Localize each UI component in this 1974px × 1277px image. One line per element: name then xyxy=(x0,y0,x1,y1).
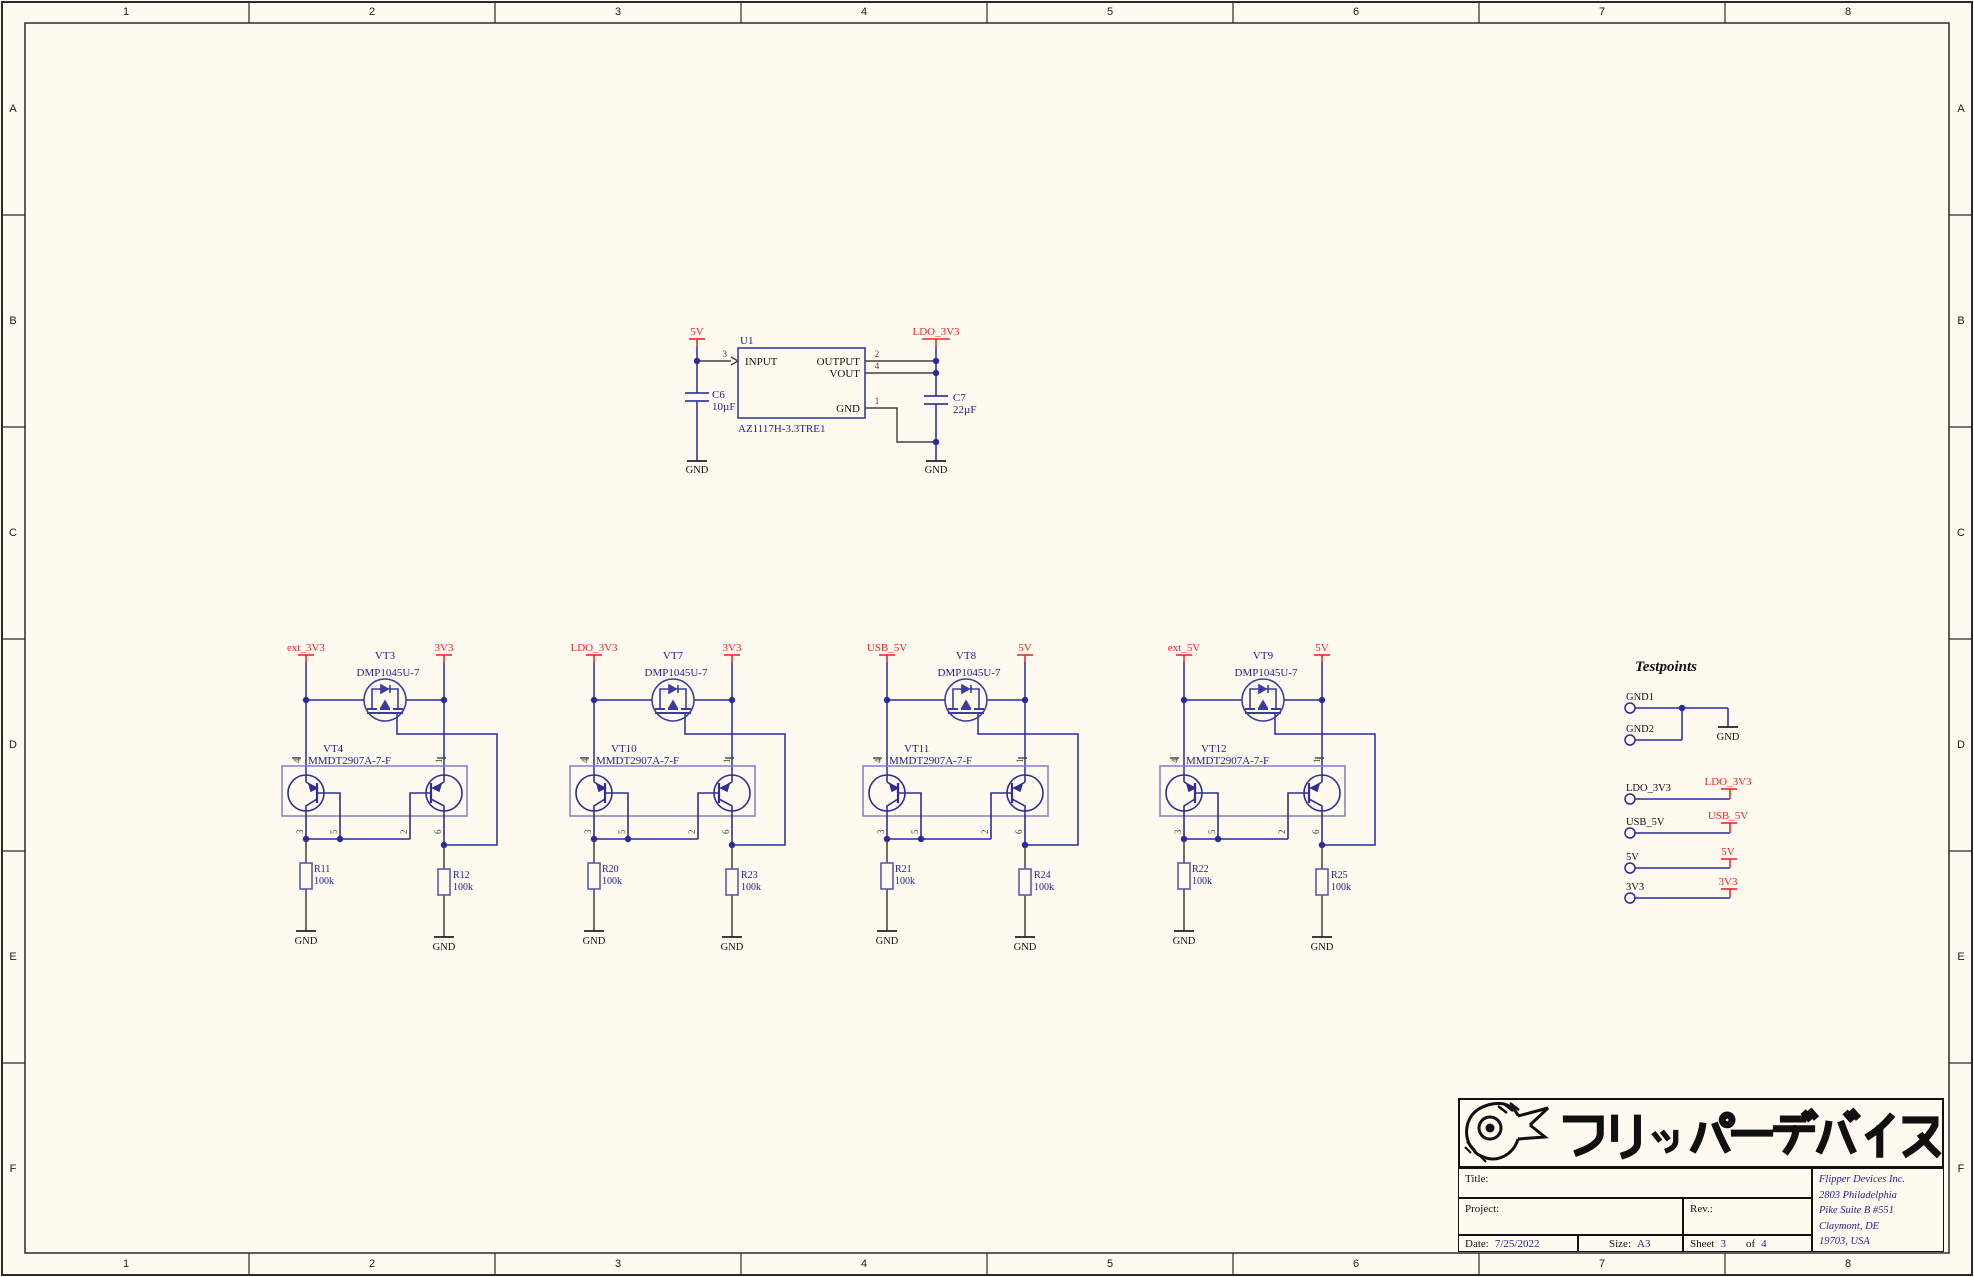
row-ref-left: E xyxy=(9,951,16,963)
bjt-part: MMDT2907A-7-F xyxy=(308,755,391,767)
bjt-refdes: VT10 xyxy=(611,743,637,755)
resistor-value: 100k xyxy=(602,876,622,887)
row-ref-right: C xyxy=(1957,527,1965,539)
col-ref-top: 8 xyxy=(1845,6,1851,18)
row-ref-left: F xyxy=(10,1163,17,1175)
row-ref-right: B xyxy=(1957,315,1964,327)
pin-number: 2 xyxy=(980,830,990,835)
pin-number: 2 xyxy=(687,830,697,835)
pin-name-gnd: GND xyxy=(836,403,860,415)
pin-number: 4 xyxy=(873,758,883,763)
col-ref-top: 3 xyxy=(615,6,621,18)
rev-label: Rev.: xyxy=(1690,1203,1713,1215)
schematic-sheet: { "colors": { "background": "#FFFAF0", "… xyxy=(0,0,1974,1277)
pin-number: 4 xyxy=(580,758,590,763)
row-ref-right: F xyxy=(1958,1163,1965,1175)
col-ref-top: 2 xyxy=(369,6,375,18)
col-ref-top: 5 xyxy=(1107,6,1113,18)
pin-number: 1 xyxy=(434,759,444,764)
gnd-label: GND xyxy=(925,465,948,476)
title-field: Title: xyxy=(1458,1168,1812,1198)
mosfet-refdes: VT3 xyxy=(375,650,396,662)
resistor-refdes: R11 xyxy=(314,864,330,875)
sheet-number: 3 xyxy=(1720,1238,1726,1251)
net-label-left: ext_3V3 xyxy=(287,642,325,654)
pin-number: 1 xyxy=(875,396,880,406)
size-field: Size: A3 xyxy=(1578,1235,1683,1252)
power-switch-circuit-2: LDO_3V3 3V3 VT7 DMP1045U-7 VT10 MMDT2907… xyxy=(558,635,858,965)
net-label-right: 3V3 xyxy=(435,642,454,654)
mosfet-refdes: VT7 xyxy=(663,650,684,662)
testpoint-net-label: USB_5V xyxy=(1708,810,1748,822)
gnd-label: GND xyxy=(1717,732,1740,743)
resistor-refdes: R24 xyxy=(1034,870,1051,881)
row-ref-right: A xyxy=(1957,103,1964,115)
testpoint-name: GND1 xyxy=(1626,692,1654,703)
col-ref-top: 1 xyxy=(123,6,129,18)
bjt-refdes: VT4 xyxy=(323,743,344,755)
testpoint-pad xyxy=(1625,863,1635,873)
testpoint-pad xyxy=(1625,893,1635,903)
pin-number: 1 xyxy=(1312,759,1322,764)
company-line: Pike Suite B #551 xyxy=(1819,1203,1943,1219)
pin-name-output: OUTPUT xyxy=(817,356,861,368)
resistor-value: 100k xyxy=(1034,882,1054,893)
resistor-refdes: R21 xyxy=(895,864,912,875)
rev-field: Rev.: xyxy=(1683,1198,1812,1235)
mosfet-part: DMP1045U-7 xyxy=(1235,667,1298,679)
title-label: Title: xyxy=(1465,1173,1488,1185)
mosfet-part: DMP1045U-7 xyxy=(357,667,420,679)
resistor-refdes: R20 xyxy=(602,864,619,875)
bjt-part: MMDT2907A-7-F xyxy=(1186,755,1269,767)
row-ref-left: D xyxy=(9,739,17,751)
testpoint-pad-gnd2 xyxy=(1625,735,1635,745)
date-field: Date: 7/25/2022 xyxy=(1458,1235,1578,1252)
bjt-part: MMDT2907A-7-F xyxy=(596,755,679,767)
row-ref-right: D xyxy=(1957,739,1965,751)
net-label-right: 5V xyxy=(1018,642,1032,654)
resistor-value: 100k xyxy=(895,876,915,887)
pin-number: 6 xyxy=(721,829,731,834)
of-label: of xyxy=(1746,1238,1755,1251)
pin-number: 5 xyxy=(617,829,627,834)
pin-number: 3 xyxy=(723,349,728,359)
testpoint-pad xyxy=(1625,794,1635,804)
mosfet-refdes: VT8 xyxy=(956,650,977,662)
capacitor-c7 xyxy=(924,396,948,404)
pin-number: 6 xyxy=(433,829,443,834)
testpoints-section: Testpoints GND1 GND2 GND LDO_3V3 USB_5V … xyxy=(1600,650,1810,930)
company-line: Claymont, DE xyxy=(1819,1219,1943,1235)
resistor-value: 100k xyxy=(1192,876,1212,887)
testpoint-net-label: 5V xyxy=(1721,846,1735,858)
pin-number: 1 xyxy=(1015,759,1025,764)
net-label-left: USB_5V xyxy=(867,642,907,654)
resistor-refdes: R23 xyxy=(741,870,758,881)
gnd-label: GND xyxy=(295,936,318,947)
mosfet-part: DMP1045U-7 xyxy=(938,667,1001,679)
regulator-part: AZ1117H-3.3TRE1 xyxy=(738,423,825,435)
dolphin-icon xyxy=(1465,1103,1548,1162)
gnd-label: GND xyxy=(433,942,456,953)
company-line: 2803 Philadelphia xyxy=(1819,1188,1943,1204)
title-block: フリッパーデバイス xyxy=(1458,1098,1944,1252)
net-label-left: LDO_3V3 xyxy=(570,642,618,654)
bjt-part: MMDT2907A-7-F xyxy=(889,755,972,767)
col-ref-bottom: 6 xyxy=(1353,1258,1359,1270)
resistor-value: 100k xyxy=(1331,882,1351,893)
col-ref-bottom: 8 xyxy=(1845,1258,1851,1270)
project-field: Project: xyxy=(1458,1198,1683,1235)
testpoint-name: LDO_3V3 xyxy=(1626,783,1671,794)
pin-number: 3 xyxy=(1173,829,1183,834)
mosfet-part: DMP1045U-7 xyxy=(645,667,708,679)
pin-number: 3 xyxy=(876,829,886,834)
sheet-field: Sheet 3 of 4 xyxy=(1683,1235,1812,1252)
resistor-value: 100k xyxy=(741,882,761,893)
testpoint-name: GND2 xyxy=(1626,724,1654,735)
regulator-refdes: U1 xyxy=(740,335,753,347)
row-ref-left: C xyxy=(9,527,17,539)
sheet-label: Sheet xyxy=(1690,1238,1714,1251)
testpoint-net-label: LDO_3V3 xyxy=(1704,776,1752,788)
pin-number: 2 xyxy=(399,830,409,835)
logo-katakana-strokes xyxy=(1566,1112,1936,1155)
pin-number: 3 xyxy=(295,829,305,834)
pin-number: 6 xyxy=(1311,829,1321,834)
col-ref-bottom: 7 xyxy=(1599,1258,1605,1270)
company-line: Flipper Devices Inc. xyxy=(1819,1172,1943,1188)
col-ref-top: 7 xyxy=(1599,6,1605,18)
col-ref-bottom: 5 xyxy=(1107,1258,1113,1270)
date-label: Date: xyxy=(1465,1238,1489,1251)
ldo-regulator-circuit: 5V LDO_3V3 U1 AZ1117H-3.3TRE1 3 2 4 1 IN… xyxy=(665,320,995,490)
net-label-right: 3V3 xyxy=(723,642,742,654)
bjt-refdes: VT12 xyxy=(1201,743,1227,755)
row-ref-right: E xyxy=(1957,951,1964,963)
resistor-value: 100k xyxy=(453,882,473,893)
testpoint-name: 5V xyxy=(1626,852,1639,863)
resistor-refdes: R12 xyxy=(453,870,470,881)
col-ref-bottom: 2 xyxy=(369,1258,375,1270)
testpoint-net-label: 3V3 xyxy=(1719,876,1738,888)
gnd-label: GND xyxy=(876,936,899,947)
testpoint-pad xyxy=(1625,828,1635,838)
project-label: Project: xyxy=(1465,1203,1499,1215)
pin-name-input: INPUT xyxy=(745,356,778,368)
col-ref-bottom: 1 xyxy=(123,1258,129,1270)
cap-value: 10µF xyxy=(712,401,735,413)
gnd-label: GND xyxy=(1014,942,1037,953)
gnd-label: GND xyxy=(1311,942,1334,953)
cap-value: 22µF xyxy=(953,404,976,416)
testpoints-title: Testpoints xyxy=(1635,659,1697,675)
testpoint-pad-gnd1 xyxy=(1625,703,1635,713)
pin-number: 5 xyxy=(1207,829,1217,834)
pin-number: 5 xyxy=(910,829,920,834)
col-ref-bottom: 4 xyxy=(861,1258,867,1270)
pin-name-vout: VOUT xyxy=(829,368,860,380)
company-line: 19703, USA xyxy=(1819,1234,1943,1250)
pin-number: 1 xyxy=(722,759,732,764)
pin-number: 5 xyxy=(329,829,339,834)
company-address: Flipper Devices Inc. 2803 Philadelphia P… xyxy=(1812,1168,1944,1252)
resistor-refdes: R25 xyxy=(1331,870,1348,881)
pin-number: 6 xyxy=(1014,829,1024,834)
sheet-total: 4 xyxy=(1761,1238,1767,1251)
col-ref-top: 6 xyxy=(1353,6,1359,18)
net-label-5v: 5V xyxy=(690,326,704,338)
gnd-label: GND xyxy=(686,465,709,476)
company-logo: フリッパーデバイス xyxy=(1458,1098,1944,1168)
capacitor-c6 xyxy=(685,393,709,401)
gnd-label: GND xyxy=(721,942,744,953)
size-label: Size: xyxy=(1609,1238,1631,1251)
resistor-refdes: R22 xyxy=(1192,864,1209,875)
net-label-ldo-3v3: LDO_3V3 xyxy=(912,326,960,338)
col-ref-bottom: 3 xyxy=(615,1258,621,1270)
cap-refdes: C7 xyxy=(953,392,966,404)
date-value: 7/25/2022 xyxy=(1495,1238,1540,1251)
bjt-refdes: VT11 xyxy=(904,743,929,755)
gnd-label: GND xyxy=(1173,936,1196,947)
pin-number: 4 xyxy=(1170,758,1180,763)
col-ref-top: 4 xyxy=(861,6,867,18)
power-switch-circuit-3: USB_5V 5V VT8 DMP1045U-7 VT11 MMDT2907A-… xyxy=(851,635,1151,965)
gnd-label: GND xyxy=(583,936,606,947)
pin-number: 2 xyxy=(875,349,880,359)
row-ref-left: B xyxy=(9,315,16,327)
resistor-value: 100k xyxy=(314,876,334,887)
pin-number: 4 xyxy=(292,758,302,763)
net-label-left: ext_5V xyxy=(1168,642,1200,654)
mosfet-refdes: VT9 xyxy=(1253,650,1274,662)
net-label-right: 5V xyxy=(1315,642,1329,654)
power-switch-circuit-4: ext_5V 5V VT9 DMP1045U-7 VT12 MMDT2907A-… xyxy=(1148,635,1448,965)
testpoint-name: 3V3 xyxy=(1626,882,1644,893)
testpoint-name: USB_5V xyxy=(1626,817,1665,828)
cap-refdes: C6 xyxy=(712,389,725,401)
pin-number: 4 xyxy=(875,361,880,371)
pin-number: 3 xyxy=(583,829,593,834)
size-value: A3 xyxy=(1637,1238,1650,1251)
row-ref-left: A xyxy=(9,103,16,115)
power-switch-circuit-1: ext_3V3 3V3 VT3 DMP1045U-7 VT4 MMDT2907A… xyxy=(270,635,570,965)
pin-number: 2 xyxy=(1277,830,1287,835)
flipper-logo-art xyxy=(1460,1100,1942,1166)
